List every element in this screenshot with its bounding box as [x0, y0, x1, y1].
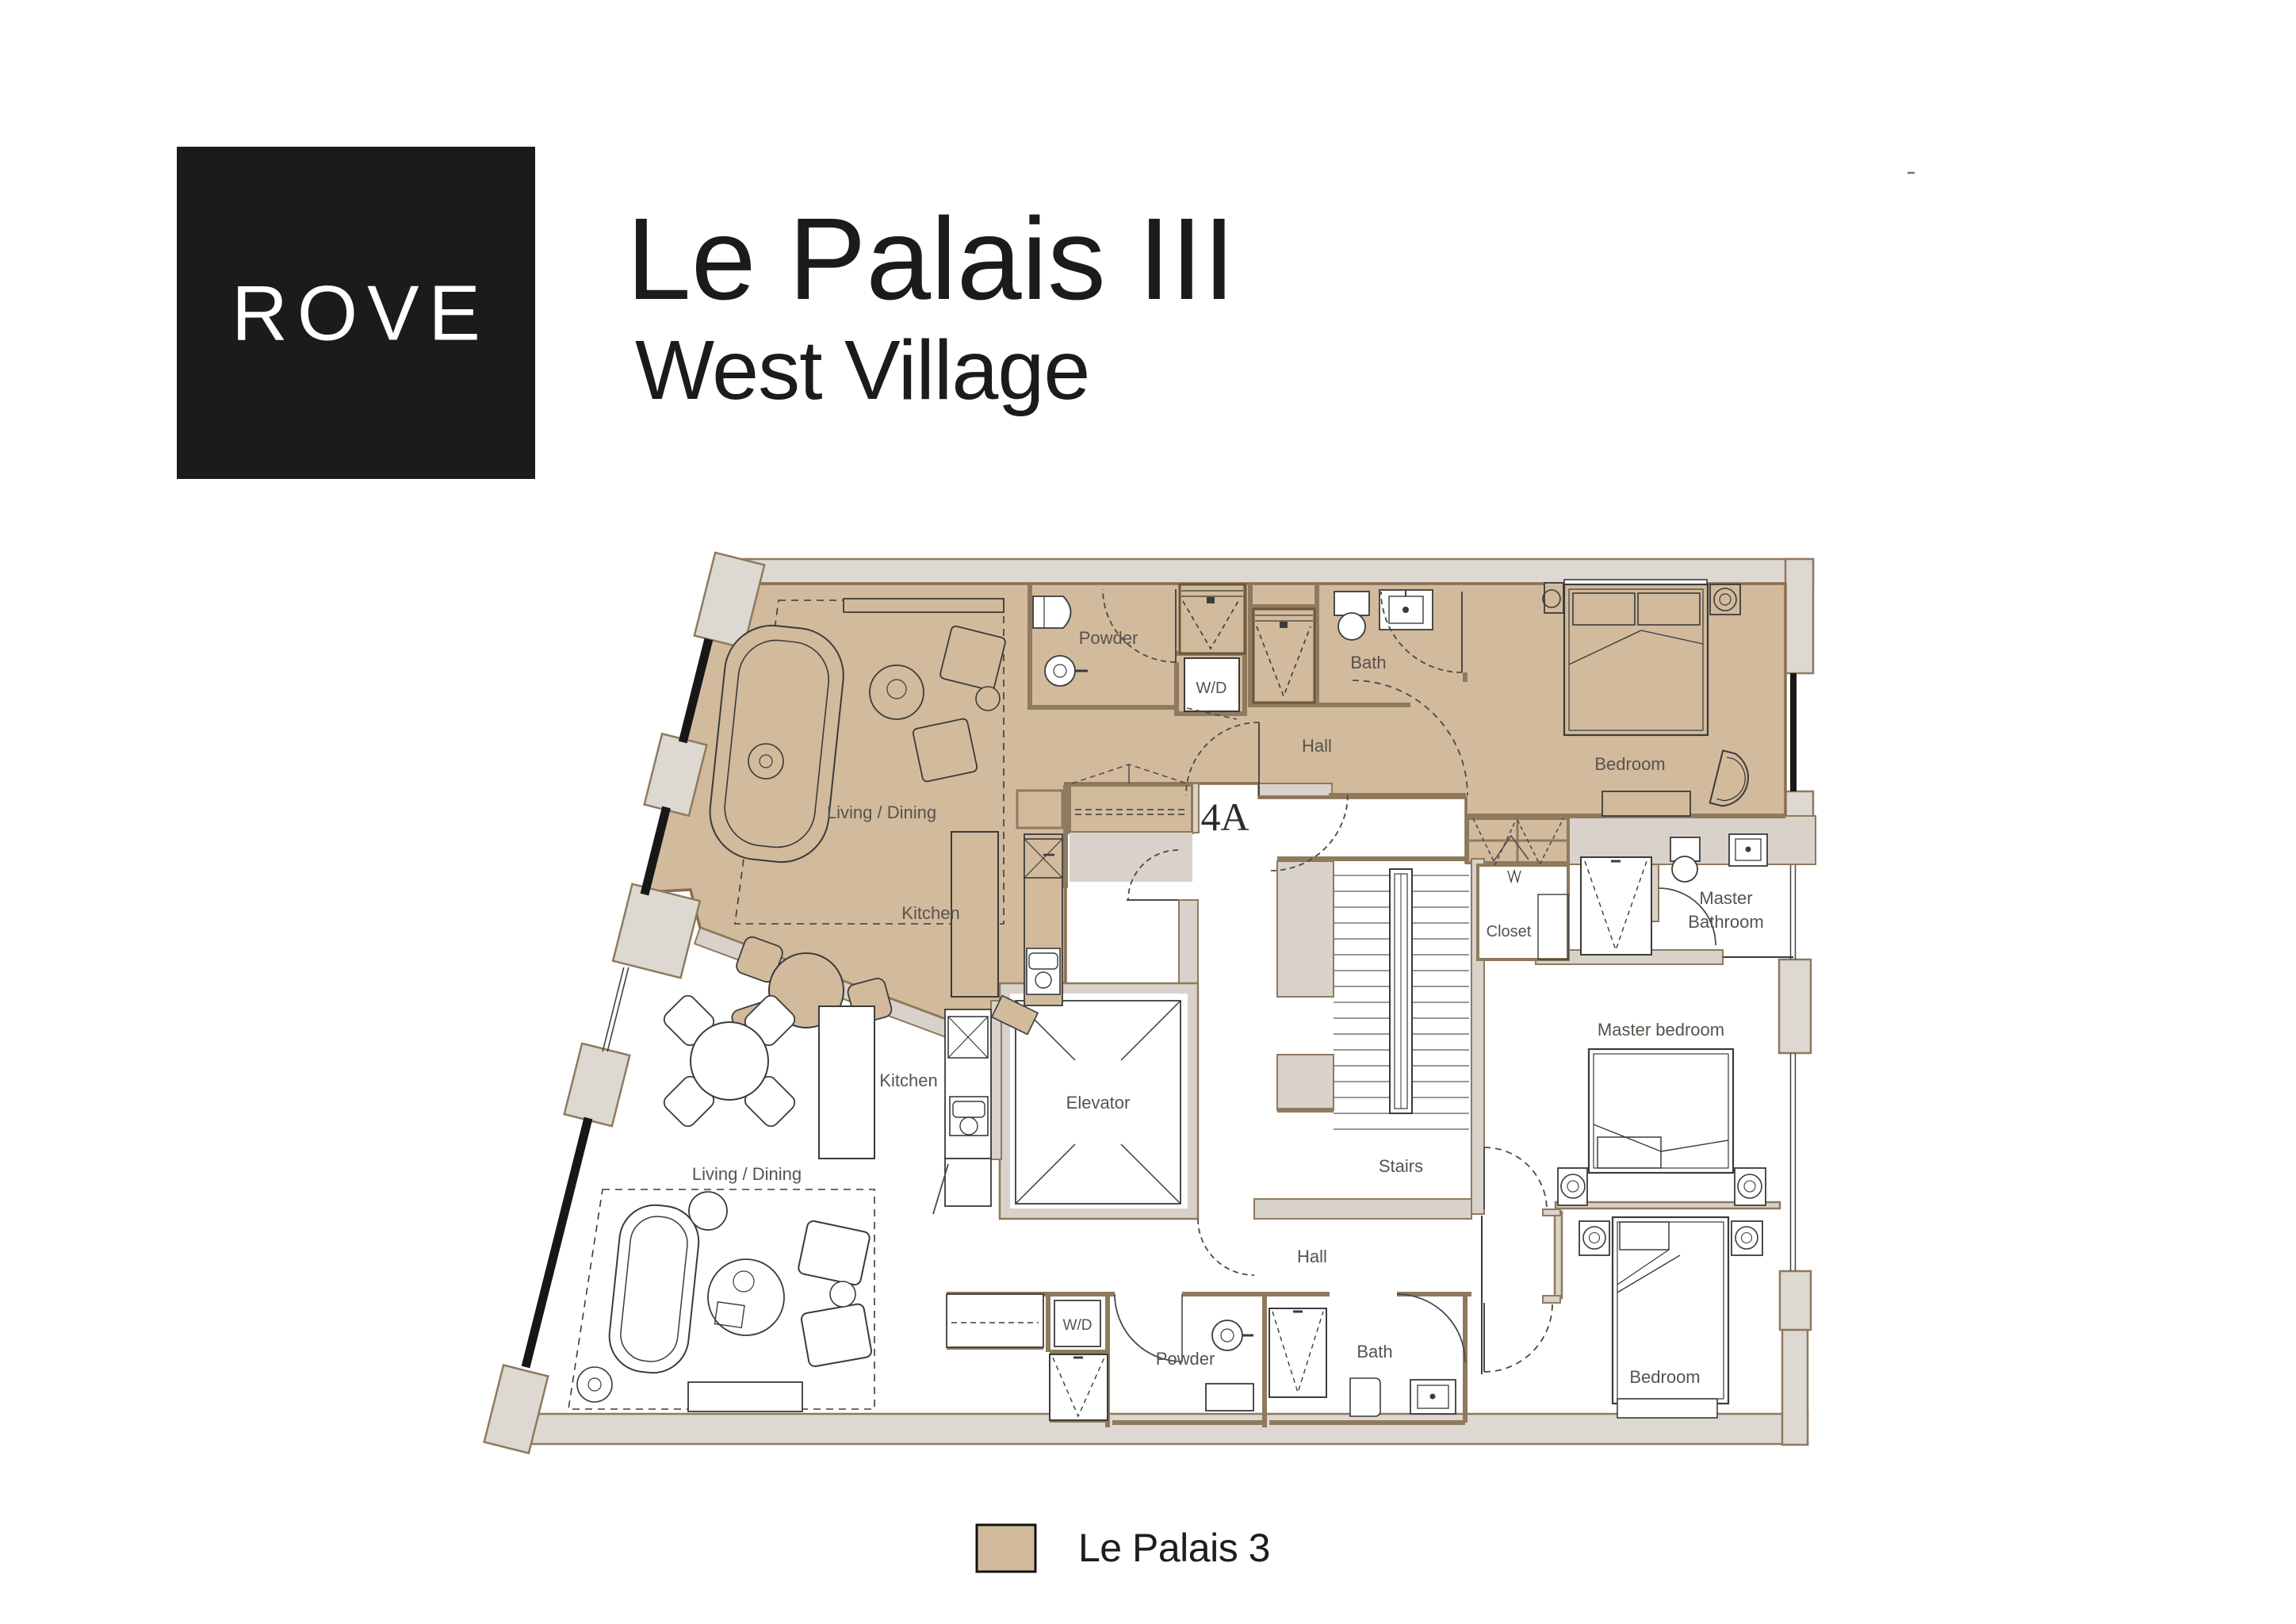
svg-text:Living / Dining: Living / Dining — [827, 802, 936, 822]
svg-text:Bedroom: Bedroom — [1594, 754, 1665, 774]
svg-text:4A: 4A — [1200, 795, 1249, 839]
svg-text:Elevator: Elevator — [1066, 1093, 1131, 1113]
svg-text:W/D: W/D — [1063, 1317, 1093, 1334]
svg-text:Le Palais 3: Le Palais 3 — [1078, 1526, 1270, 1570]
svg-text:Hall: Hall — [1302, 736, 1332, 756]
svg-text:Living / Dining: Living / Dining — [692, 1164, 802, 1184]
svg-text:Closet: Closet — [1487, 923, 1532, 940]
svg-text:Master bedroom: Master bedroom — [1598, 1020, 1724, 1040]
svg-text:Bath: Bath — [1350, 653, 1386, 672]
svg-text:Powder: Powder — [1079, 628, 1138, 648]
svg-text:Powder: Powder — [1156, 1349, 1215, 1369]
svg-text:W/D: W/D — [1196, 680, 1227, 697]
svg-text:Bathroom: Bathroom — [1688, 912, 1763, 932]
svg-text:Bath: Bath — [1357, 1342, 1392, 1362]
svg-text:Bedroom: Bedroom — [1629, 1367, 1700, 1387]
svg-text:Kitchen: Kitchen — [879, 1071, 937, 1090]
svg-text:Stairs: Stairs — [1379, 1156, 1423, 1176]
svg-text:Kitchen: Kitchen — [901, 903, 959, 923]
svg-text:Master: Master — [1699, 888, 1752, 908]
svg-text:Hall: Hall — [1297, 1247, 1327, 1266]
